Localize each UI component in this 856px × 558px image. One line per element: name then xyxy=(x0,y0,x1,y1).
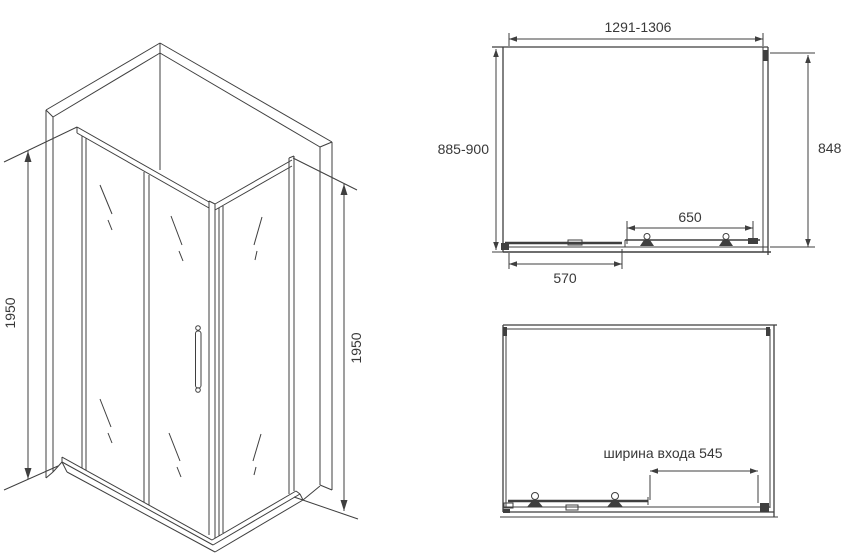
top-dim-depth: 885-900 xyxy=(438,49,499,250)
bottom-plan-view: ширина входа 545 xyxy=(500,325,778,517)
dim-label-outer-span: 570 xyxy=(553,270,577,286)
iso-base-tray xyxy=(53,457,320,552)
dim-label-width-range: 1291-1306 xyxy=(605,19,672,35)
iso-view: 1950 1950 xyxy=(2,43,364,552)
iso-dim-height-left: 1950 xyxy=(2,127,77,490)
top-plan-view: 1291-1306 885-900 848 650 xyxy=(438,19,842,286)
iso-dim-height-right: 1950 xyxy=(293,158,364,519)
glass-shine-marks xyxy=(100,185,262,477)
dim-label-inner-span: 650 xyxy=(678,209,702,225)
shower-enclosure-drawing: 1950 1950 xyxy=(0,0,856,558)
top-dim-side-height: 848 xyxy=(770,53,842,247)
dim-label-depth-range: 885-900 xyxy=(438,141,490,157)
top-dim-width: 1291-1306 xyxy=(509,19,763,46)
door-handle xyxy=(196,326,202,393)
dim-label-entrance-width: ширина входа 545 xyxy=(603,445,722,461)
dim-label-height-left: 1950 xyxy=(2,297,18,328)
technical-drawing-page: 1950 1950 xyxy=(0,0,856,558)
iso-glass-frame xyxy=(77,127,294,538)
top-plan-outline xyxy=(492,47,771,255)
dim-label-height-right: 1950 xyxy=(348,332,364,363)
bottom-dim-entrance: ширина входа 545 xyxy=(603,445,758,503)
dim-label-side-height: 848 xyxy=(818,140,842,156)
top-dim-outer-span: 570 xyxy=(509,249,622,286)
bottom-plan-outline xyxy=(500,325,778,517)
